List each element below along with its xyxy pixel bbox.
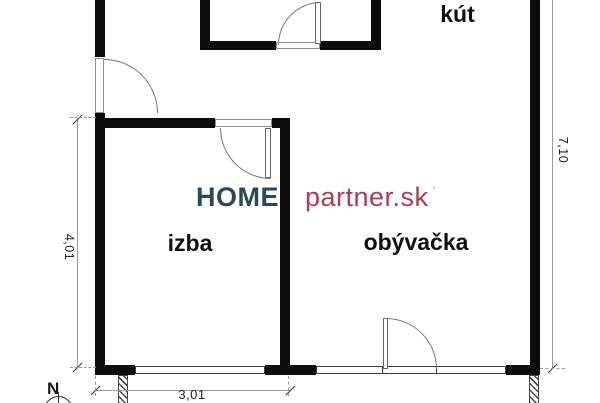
door-arc-izba: [220, 128, 271, 179]
room-label-kut: kút: [425, 1, 490, 28]
dim-ext-bottom-right: [288, 376, 289, 396]
wall-right-outer: [530, 0, 540, 375]
wall-closet-bottom-left: [200, 41, 276, 50]
wall-left-upper: [95, 0, 105, 57]
watermark-partner-text: partner.sk: [305, 182, 429, 213]
dim-ext-left-top: [70, 117, 96, 118]
dim-label-left: 4,01: [55, 227, 83, 267]
wall-bottom-segment-left: [95, 365, 135, 375]
wall-interior-vertical: [280, 118, 290, 375]
door-arc-closet: [278, 2, 321, 45]
dim-label-bottom: 3,01: [170, 386, 214, 402]
wall-bottom-segment-middle: [265, 365, 316, 375]
dim-ext-right-bottom: [540, 368, 565, 369]
door-arc-left-wall: [104, 59, 158, 113]
door-arc-living-room: [386, 318, 437, 369]
dim-label-right: 7,10: [549, 130, 577, 170]
dim-line-right: [552, 0, 553, 369]
watermark-logo: HOME partner.sk ': [196, 182, 444, 213]
watermark-trademark-mark: ': [433, 183, 435, 198]
door-opening-izba: [215, 119, 272, 127]
wall-closet-bottom-right: [320, 41, 381, 50]
room-label-obyvacka: obývačka: [356, 229, 476, 256]
hatched-wall-stub-right: [529, 375, 539, 403]
door-opening-left-wall: [95, 58, 104, 113]
wall-bottom-segment-right: [506, 365, 540, 375]
floor-plan: 7,10 4,01 3,01 kút izba obývačka HOME pa…: [0, 0, 600, 403]
watermark-home-text: HOME: [196, 182, 279, 213]
hatched-wall-stub-left: [118, 375, 128, 403]
dim-ext-bottom-left: [95, 376, 96, 396]
wall-izba-top-left: [95, 118, 215, 128]
window-izba: [135, 366, 265, 374]
wall-left-lower: [95, 113, 105, 375]
room-label-izba: izba: [150, 230, 230, 257]
dim-ext-left-bottom: [70, 367, 96, 368]
